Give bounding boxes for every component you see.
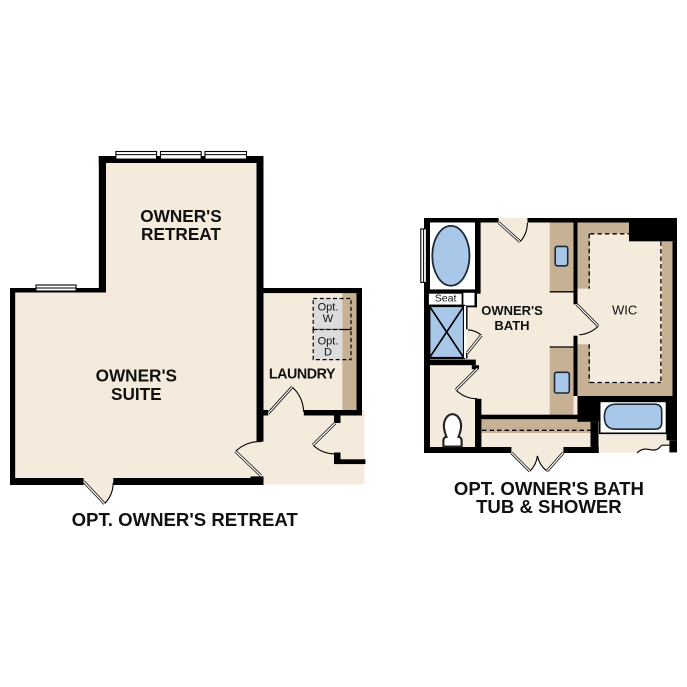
svg-text:OWNER'S: OWNER'S [481,303,543,318]
svg-text:OPT. OWNER'S RETREAT: OPT. OWNER'S RETREAT [72,509,299,530]
svg-text:OWNER'S: OWNER'S [96,366,177,386]
svg-text:BATH: BATH [494,318,529,333]
svg-text:Seat: Seat [435,293,457,305]
svg-text:WIC: WIC [612,303,637,318]
svg-text:W: W [323,313,334,325]
svg-text:RETREAT: RETREAT [141,224,221,244]
svg-text:LAUNDRY: LAUNDRY [269,366,336,382]
svg-text:Opt.: Opt. [318,302,339,314]
svg-text:TUB & SHOWER: TUB & SHOWER [476,496,622,517]
svg-text:D: D [324,346,332,358]
svg-text:SUITE: SUITE [111,384,162,404]
